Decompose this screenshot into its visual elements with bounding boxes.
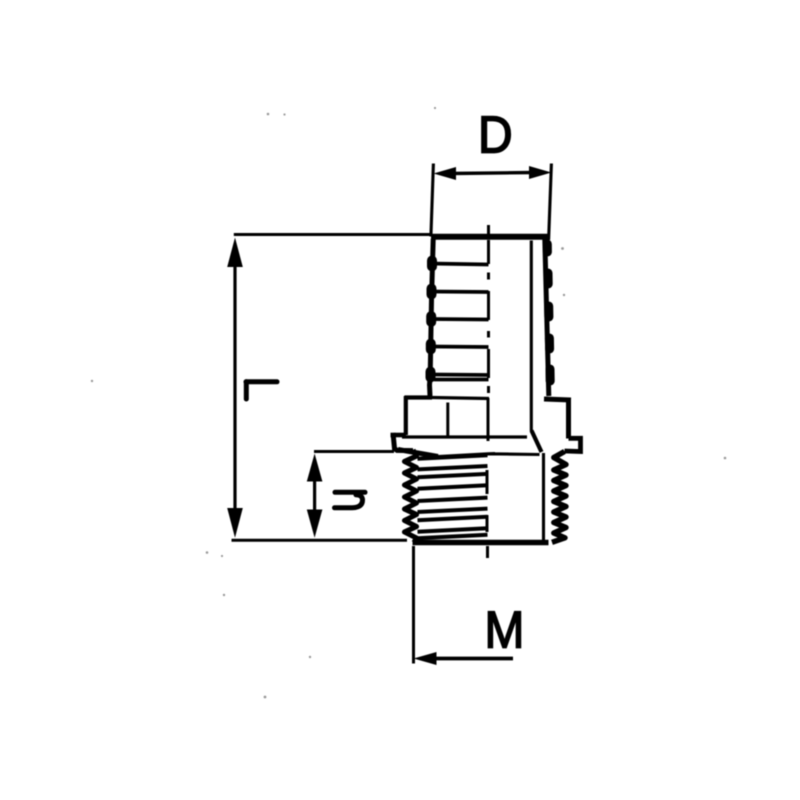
svg-text:M: M — [485, 601, 525, 659]
svg-text:D: D — [478, 106, 513, 164]
